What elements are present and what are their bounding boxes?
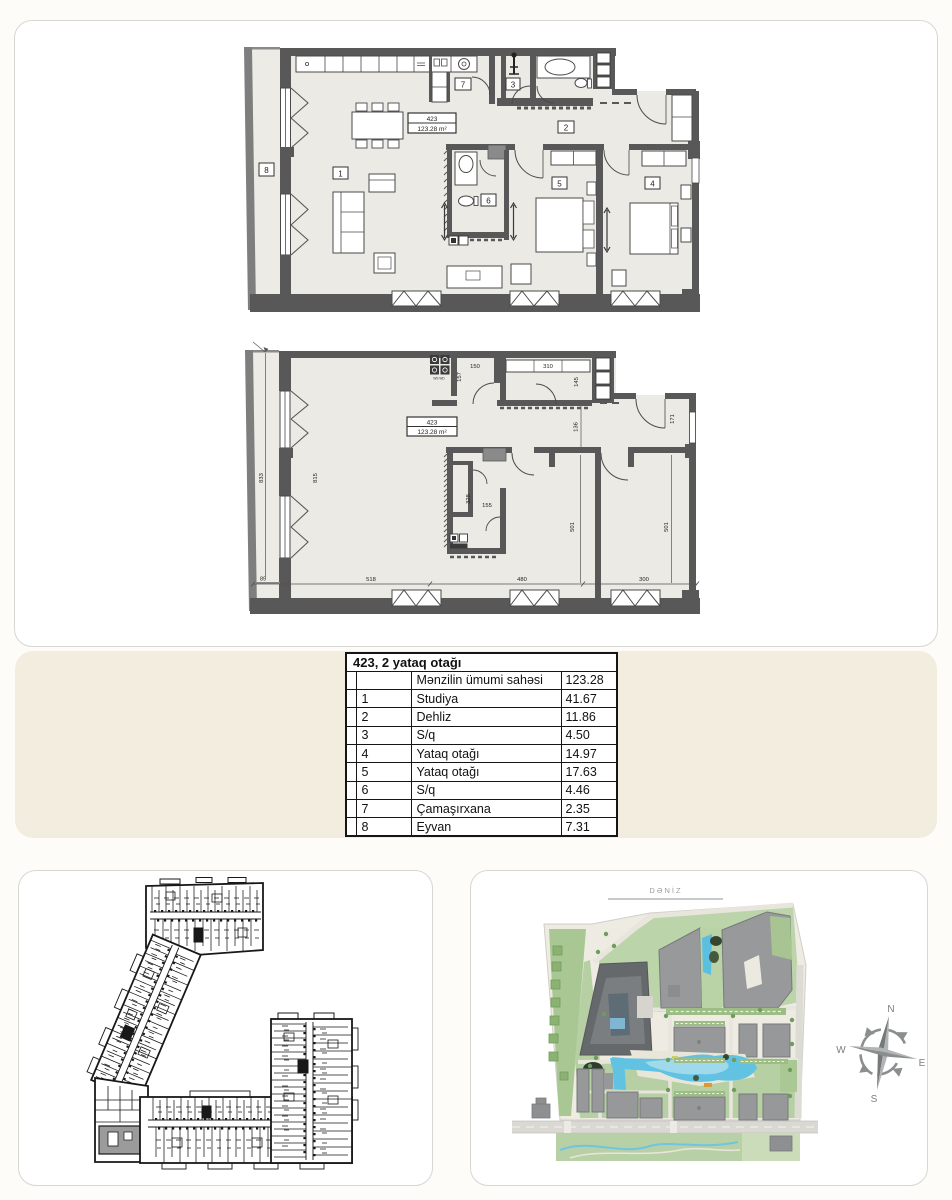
svg-text:423: 423 (427, 420, 438, 427)
svg-text:501: 501 (664, 522, 670, 532)
svg-text:3: 3 (511, 81, 516, 90)
svg-text:171: 171 (670, 414, 676, 424)
svg-text:815: 815 (313, 473, 319, 483)
svg-text:DƏNİZ: DƏNİZ (649, 886, 682, 895)
svg-text:328: 328 (466, 494, 472, 504)
svg-text:2: 2 (564, 124, 569, 133)
svg-text:S: S (871, 1094, 878, 1105)
svg-text:480: 480 (517, 577, 527, 583)
svg-text:155: 155 (482, 503, 492, 509)
svg-text:423: 423 (427, 116, 438, 123)
svg-text:E: E (919, 1058, 926, 1069)
svg-text:123.28 m²: 123.28 m² (417, 429, 447, 436)
svg-text:150: 150 (470, 364, 480, 370)
svg-text:N: N (887, 1004, 894, 1015)
svg-text:501: 501 (570, 522, 576, 532)
svg-text:4: 4 (650, 180, 655, 189)
svg-text:6: 6 (486, 197, 491, 206)
svg-text:W: W (836, 1045, 846, 1056)
svg-text:1: 1 (338, 170, 343, 179)
svg-text:8: 8 (264, 166, 269, 175)
svg-text:157: 157 (457, 372, 463, 382)
svg-text:5: 5 (557, 180, 562, 189)
svg-text:136: 136 (574, 422, 580, 432)
svg-text:833: 833 (259, 473, 265, 483)
svg-text:123.28 m²: 123.28 m² (417, 126, 447, 133)
svg-text:89: 89 (260, 577, 266, 583)
svg-text:WS WD: WS WD (433, 377, 445, 381)
svg-text:518: 518 (366, 577, 376, 583)
svg-text:300: 300 (639, 577, 649, 583)
svg-text:145: 145 (574, 377, 580, 387)
svg-text:310: 310 (543, 364, 553, 370)
svg-text:7: 7 (461, 81, 466, 90)
